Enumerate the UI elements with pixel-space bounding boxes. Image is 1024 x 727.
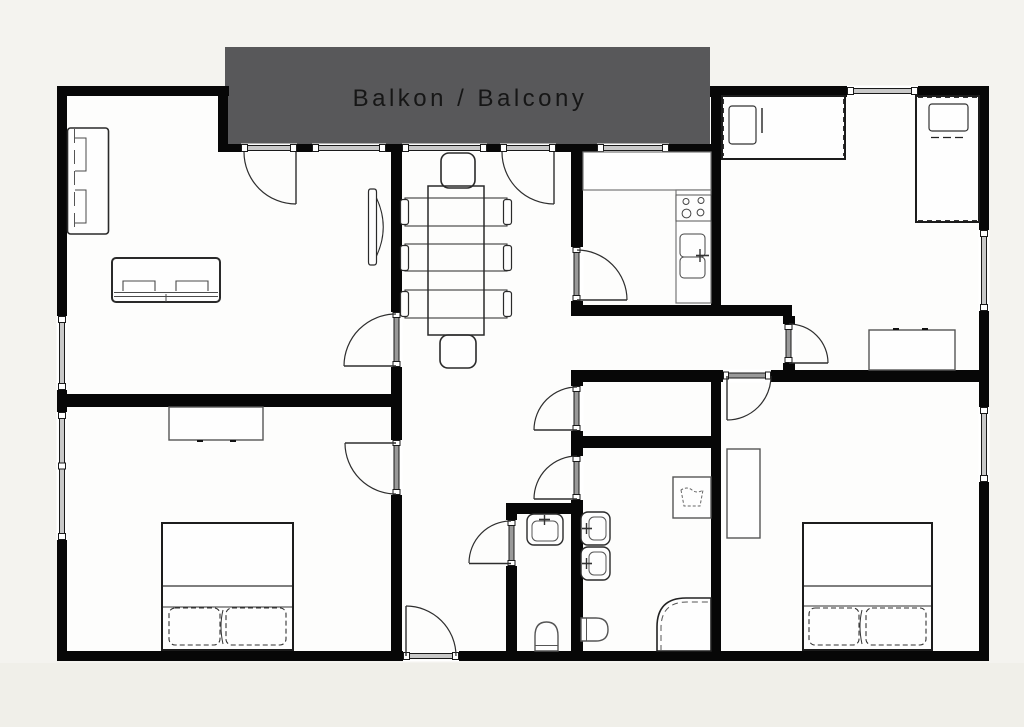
svg-text:Balkon / Balcony: Balkon / Balcony bbox=[353, 85, 588, 112]
